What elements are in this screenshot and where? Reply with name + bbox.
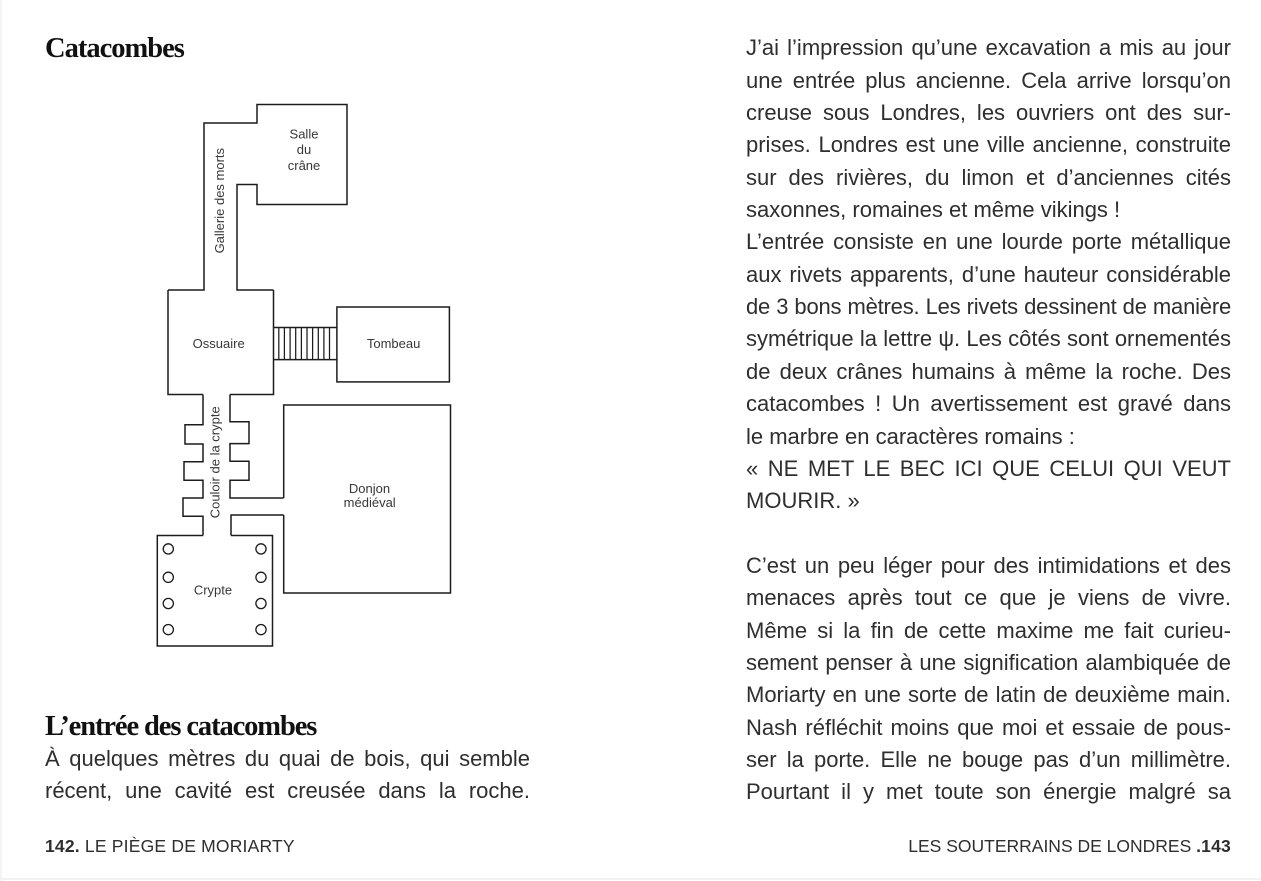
svg-text:médiéval: médiéval xyxy=(344,495,396,510)
svg-text:Gallerie des morts: Gallerie des morts xyxy=(212,147,227,253)
svg-text:Crypte: Crypte xyxy=(194,583,232,598)
svg-text:Couloir de la crypte: Couloir de la crypte xyxy=(207,406,222,518)
svg-text:du: du xyxy=(297,142,311,157)
svg-text:Tombeau: Tombeau xyxy=(367,336,420,351)
svg-text:crâne: crâne xyxy=(288,158,321,173)
svg-text:Ossuaire: Ossuaire xyxy=(193,336,245,351)
svg-text:Donjon: Donjon xyxy=(349,481,390,496)
svg-text:Salle: Salle xyxy=(290,127,319,142)
